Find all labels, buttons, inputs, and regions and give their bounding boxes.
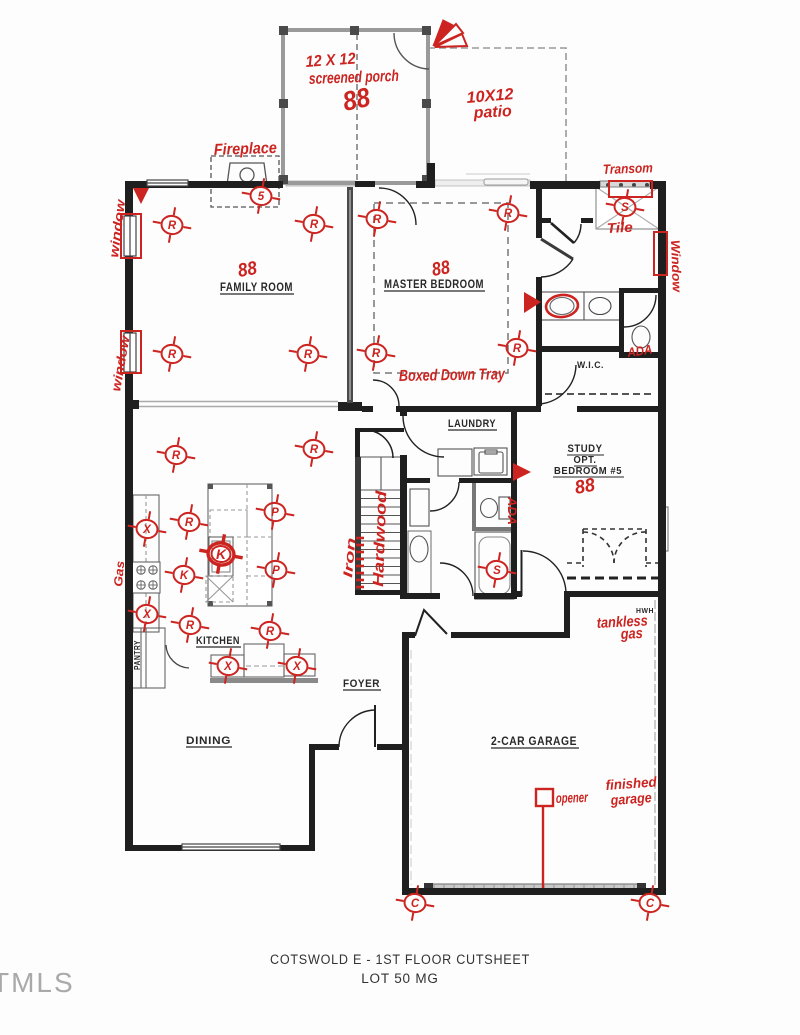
svg-text:X: X [223,661,233,673]
svg-text:X: X [292,661,302,673]
svg-text:R: R [185,517,194,529]
svg-text:PANTRY: PANTRY [132,640,142,670]
svg-text:FAMILY ROOM: FAMILY ROOM [220,282,293,294]
svg-text:X: X [142,609,152,621]
svg-text:Tile: Tile [606,219,633,236]
svg-text:W.I.C.: W.I.C. [577,360,604,371]
svg-text:R: R [513,343,522,355]
svg-text:Fireplace: Fireplace [214,140,278,159]
svg-text:Hardwood: Hardwood [370,490,390,588]
svg-text:Transom: Transom [603,160,653,177]
svg-text:gas: gas [619,625,643,643]
svg-text:R: R [310,219,319,231]
svg-text:LAUNDRY: LAUNDRY [448,418,496,430]
svg-text:R: R [168,349,177,361]
svg-text:garage: garage [609,789,652,808]
svg-text:K: K [216,546,227,562]
svg-text:R: R [373,214,382,226]
svg-text:88: 88 [236,258,259,282]
svg-text:2-CAR GARAGE: 2-CAR GARAGE [491,736,577,748]
svg-text:FOYER: FOYER [343,678,380,690]
svg-text:opener: opener [556,789,590,806]
svg-text:patio: patio [472,103,512,122]
svg-text:TMLS: TMLS [0,967,75,998]
svg-text:COTSWOLD E - 1ST FLOOR CUTSHEE: COTSWOLD E - 1ST FLOOR CUTSHEET [270,952,530,967]
svg-text:C: C [411,898,420,910]
svg-text:R: R [504,208,513,220]
svg-text:DINING: DINING [186,735,231,747]
svg-text:X: X [142,524,152,536]
svg-text:88: 88 [573,475,597,499]
svg-text:LOT 50 MG: LOT 50 MG [361,971,438,986]
svg-text:R: R [186,620,195,632]
svg-text:R: R [172,450,181,462]
svg-text:Window: Window [668,240,684,294]
svg-text:Gas: Gas [111,560,127,587]
svg-text:ADA: ADA [505,496,519,525]
svg-text:Boxed Down Tray: Boxed Down Tray [399,366,506,385]
svg-text:12 X 12: 12 X 12 [305,51,356,71]
svg-text:S: S [493,565,501,577]
svg-text:KITCHEN: KITCHEN [196,635,240,647]
svg-text:C: C [646,898,655,910]
svg-text:P: P [272,565,280,577]
svg-text:K: K [180,570,189,582]
svg-text:P: P [271,507,279,519]
svg-text:R: R [266,626,275,638]
svg-text:S: S [621,202,629,214]
svg-text:R: R [310,444,319,456]
svg-text:R: R [372,348,381,360]
svg-text:R: R [304,349,313,361]
svg-text:R: R [168,220,177,232]
svg-text:5: 5 [258,191,265,203]
